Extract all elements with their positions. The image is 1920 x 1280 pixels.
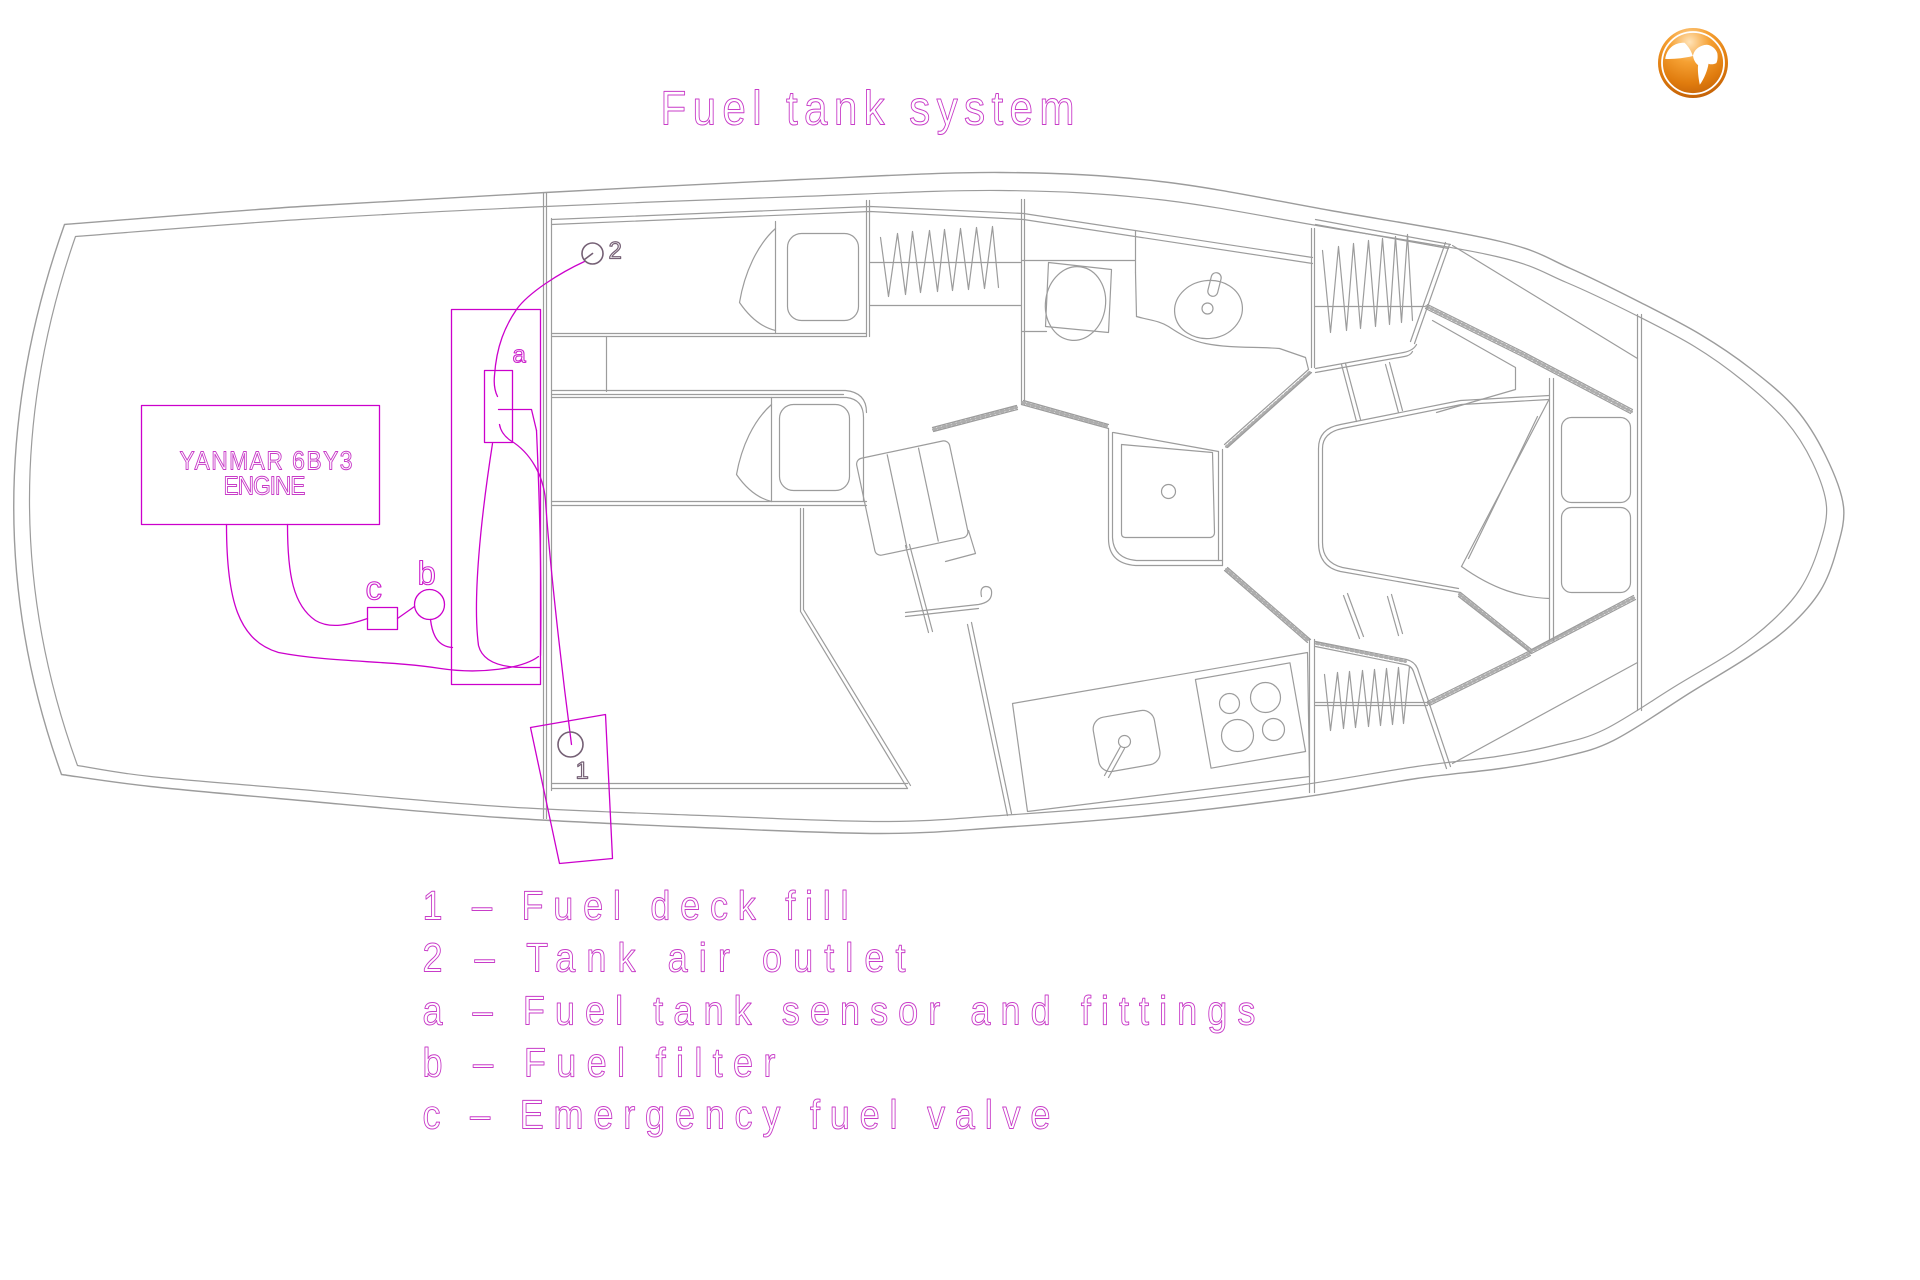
svg-text:1: 1 [576,758,589,785]
svg-text:2: 2 [609,238,622,265]
svg-text:b: b [418,555,436,592]
svg-text:Fuel tank system: Fuel tank system [661,81,1075,135]
svg-text:a – Fuel tank sensor and fitti: a – Fuel tank sensor and fittings [422,988,1255,1034]
svg-text:a: a [513,342,527,369]
svg-text:ENGINE: ENGINE [223,472,305,501]
svg-text:1 – Fuel deck fill: 1 – Fuel deck fill [422,883,848,929]
svg-text:2 – Tank air outlet: 2 – Tank air outlet [422,935,905,981]
svg-text:c – Emergency fuel valve: c – Emergency fuel valve [422,1092,1050,1138]
svg-text:c: c [366,570,383,607]
svg-text:b – Fuel filter: b – Fuel filter [422,1040,775,1086]
